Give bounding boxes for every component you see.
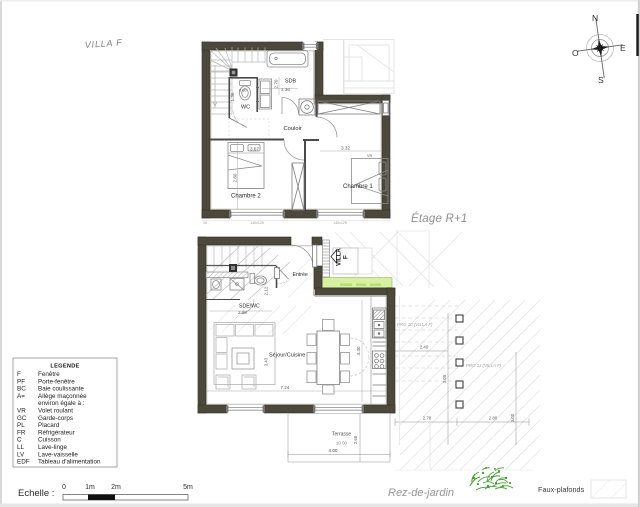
svg-text:E: E — [620, 43, 626, 53]
svg-text:SDE/WC: SDE/WC — [239, 304, 260, 310]
svg-text:F: F — [17, 371, 21, 378]
svg-text:Étage R+1: Étage R+1 — [411, 212, 467, 225]
svg-text:2.12: 2.12 — [264, 286, 269, 295]
svg-text:Baie coulissante: Baie coulissante — [38, 386, 84, 393]
svg-text:FR: FR — [17, 429, 26, 436]
svg-text:Cuisson: Cuisson — [38, 437, 61, 444]
svg-text:EDF: EDF — [17, 459, 30, 466]
svg-text:3.43: 3.43 — [264, 357, 269, 366]
svg-text:LV: LV — [17, 451, 25, 458]
svg-text:Séjour/Cuisine: Séjour/Cuisine — [269, 353, 305, 359]
svg-text:LL: LL — [17, 444, 25, 451]
svg-text:Rez-de-jardin: Rez-de-jardin — [388, 487, 454, 499]
svg-text:2.80: 2.80 — [233, 173, 238, 182]
svg-text:BC: BC — [17, 386, 26, 393]
svg-text:A=: A= — [17, 393, 25, 400]
svg-text:3.05: 3.05 — [442, 374, 447, 383]
svg-text:Lave-vaisselle: Lave-vaisselle — [38, 451, 78, 458]
svg-text:PRG 11 (VILLA F): PRG 11 (VILLA F) — [466, 363, 502, 368]
svg-text:S: S — [598, 75, 604, 85]
svg-text:3.32: 3.32 — [341, 146, 350, 151]
svg-text:Volet roulant: Volet roulant — [38, 408, 73, 415]
svg-text:Placard: Placard — [38, 422, 60, 429]
svg-text:SDB: SDB — [285, 79, 296, 85]
svg-text:Allège maçonnée: Allège maçonnée — [38, 393, 87, 400]
svg-text:2.80: 2.80 — [489, 416, 498, 421]
svg-text:2.60: 2.60 — [353, 435, 358, 444]
svg-text:GC: GC — [17, 415, 27, 422]
svg-text:environ égale à :: environ égale à : — [38, 400, 85, 407]
svg-text:0: 0 — [62, 484, 66, 491]
svg-text:PRG 10 (VILLA F): PRG 10 (VILLA F) — [397, 322, 433, 327]
svg-text:C: C — [17, 437, 22, 444]
svg-text:Porte-fenêtre: Porte-fenêtre — [38, 378, 75, 385]
svg-text:WC: WC — [241, 105, 250, 111]
svg-text:±0.00: ±0.00 — [336, 441, 348, 446]
svg-text:Couloir: Couloir — [284, 126, 302, 132]
svg-text:Chambre 2: Chambre 2 — [231, 194, 261, 200]
svg-text:O: O — [572, 48, 579, 58]
svg-text:Tableau d'alimentation: Tableau d'alimentation — [38, 459, 101, 466]
svg-text:Echelle :: Echelle : — [18, 488, 54, 499]
svg-text:3.87: 3.87 — [250, 147, 259, 152]
svg-text:PL: PL — [17, 422, 25, 429]
svg-text:Lave-linge: Lave-linge — [38, 444, 68, 451]
svg-text:Réfrigérateur: Réfrigérateur — [38, 429, 75, 436]
svg-text:N: N — [592, 13, 598, 23]
svg-text:LEGENDE: LEGENDE — [50, 364, 79, 370]
svg-text:Fenêtre: Fenêtre — [38, 371, 60, 378]
svg-text:0.80: 0.80 — [239, 88, 248, 93]
svg-text:5m: 5m — [183, 484, 193, 491]
svg-text:2.70: 2.70 — [274, 79, 279, 88]
svg-text:VILLA: VILLA — [336, 248, 343, 266]
svg-text:2m: 2m — [111, 484, 121, 491]
svg-text:VR: VR — [17, 408, 26, 415]
svg-text:2.78: 2.78 — [423, 416, 432, 421]
svg-text:10: 10 — [203, 221, 207, 225]
svg-text:Chambre 1: Chambre 1 — [343, 184, 373, 190]
svg-text:VILLA F: VILLA F — [84, 37, 122, 50]
svg-text:Terrasse: Terrasse — [332, 432, 351, 438]
svg-text:F: F — [343, 255, 350, 259]
svg-text:140x125: 140x125 — [333, 221, 347, 225]
svg-text:1.36: 1.36 — [230, 92, 235, 101]
svg-text:4.00: 4.00 — [329, 448, 338, 453]
svg-text:2.40: 2.40 — [420, 345, 429, 350]
svg-text:Garde-corps: Garde-corps — [38, 415, 73, 422]
svg-text:2.98: 2.98 — [238, 310, 247, 315]
svg-text:PF: PF — [17, 378, 25, 385]
svg-text:140x125: 140x125 — [250, 221, 264, 225]
svg-text:Entrée: Entrée — [293, 272, 308, 278]
svg-text:Faux-plafonds: Faux-plafonds — [538, 485, 585, 494]
svg-text:VR: VR — [367, 154, 373, 158]
svg-text:2.36: 2.36 — [281, 87, 290, 92]
svg-text:7.24: 7.24 — [281, 385, 290, 390]
svg-text:3.00: 3.00 — [510, 413, 515, 422]
svg-text:4.40: 4.40 — [356, 346, 361, 355]
svg-text:1m: 1m — [85, 484, 95, 491]
